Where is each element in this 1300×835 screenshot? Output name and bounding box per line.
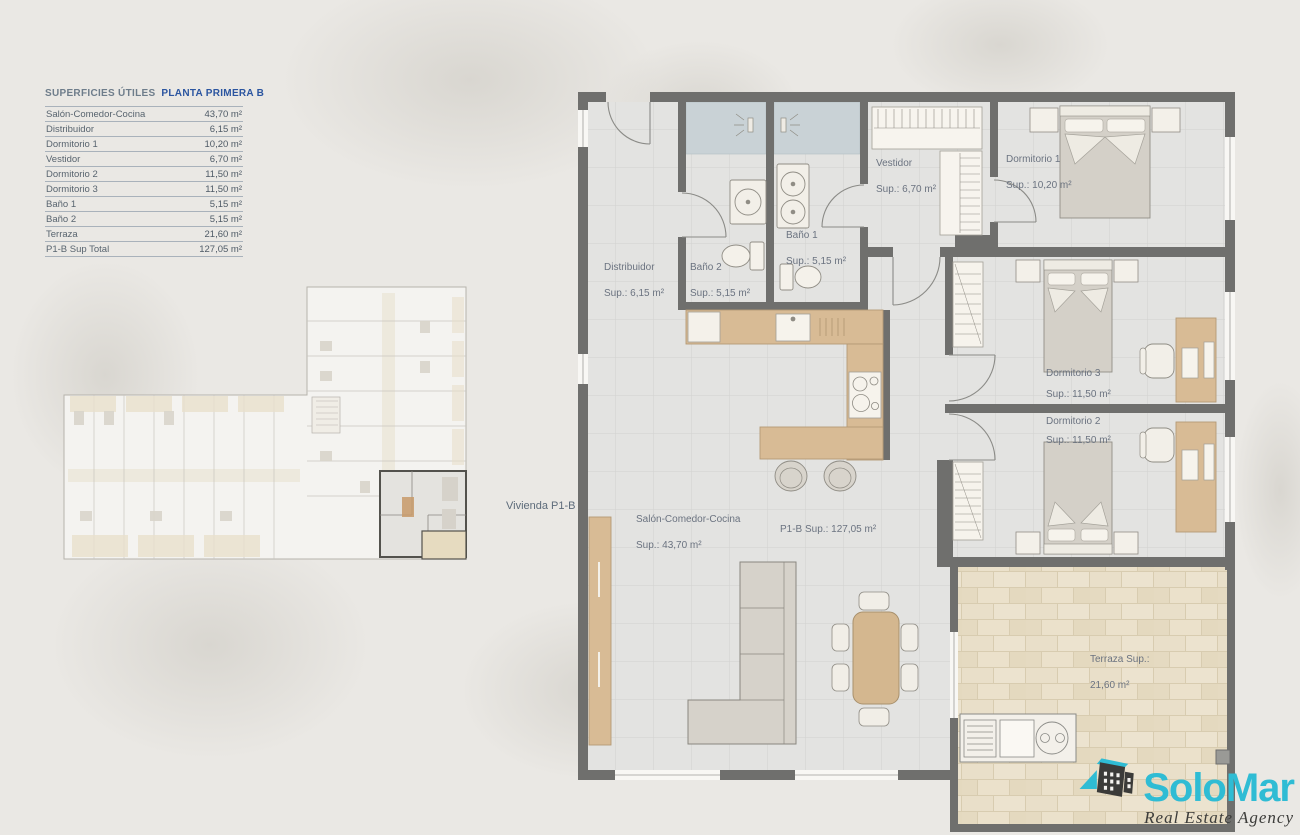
room-label-dormitorio3: Dormitorio 3 Sup.: 11,50 m² [1046,368,1111,415]
table-row-label: Terraza [46,229,78,240]
overview-unit-terrace [422,531,466,559]
room-label-bano2: Baño 2 Sup.: 5,15 m² [690,262,750,314]
overview-stairs [312,397,340,433]
background-stain [50,530,370,760]
table-row-label: Dormitorio 2 [46,169,98,180]
table-row-value: 5,15 m² [210,214,242,225]
table-row: Dormitorio 211,50 m² [45,167,243,182]
dining-chair [901,624,918,651]
room-label-dormitorio2: Dormitorio 2 Sup.: 11,50 m² [1046,416,1111,461]
surface-table-title-gray: SUPERFICIES ÚTILES [45,88,155,99]
table-row: Baño 15,15 m² [45,197,243,212]
agency-tagline: Real Estate Agency [1078,808,1294,828]
dining-chair [859,592,889,610]
overview-unit-label: Vivienda P1-B [506,500,576,512]
agency-logo: SoloMar Real Estate Agency [1078,750,1294,828]
surface-table: SUPERFICIES ÚTILESPLANTA PRIMERA B Salón… [45,88,243,257]
floorplan-main: Distribuidor Sup.: 6,15 m² Baño 2 Sup.: … [578,92,1245,835]
table-row-label: Distribuidor [46,124,94,135]
table-row-value: 11,50 m² [205,169,242,180]
table-row-value: 21,60 m² [205,229,243,240]
table-row: Salón-Comedor-Cocina43,70 m² [45,107,243,122]
shower-bano2 [686,102,766,154]
surface-table-rows: Salón-Comedor-Cocina43,70 m²Distribuidor… [45,106,243,257]
table-row-value: 11,50 m² [205,184,242,195]
bar-stool [775,461,807,491]
table-row-value: 127,05 m² [199,244,242,255]
table-row-label: Baño 2 [46,214,76,225]
table-row-value: 10,20 m² [205,139,243,150]
label-total-sup: P1-B Sup.: 127,05 m² [780,524,876,550]
table-row-label: Vestidor [46,154,80,165]
dining-chair [901,664,918,691]
table-row: Baño 25,15 m² [45,212,243,227]
table-row-value: 43,70 m² [205,109,243,120]
table-row-value: 5,15 m² [210,199,242,210]
room-label-vestidor: Vestidor Sup.: 6,70 m² [876,158,936,210]
table-row: Dormitorio 110,20 m² [45,137,243,152]
agency-brand-name: SoloMar [1143,770,1294,806]
floorplan-sheet: SUPERFICIES ÚTILESPLANTA PRIMERA B Salón… [0,0,1300,835]
sideboard [589,517,611,745]
dining-chair [859,708,889,726]
kitchen-fridge [688,312,720,342]
agency-logo-icon [1078,750,1139,806]
dining-table [853,612,899,704]
table-row-label: Dormitorio 3 [46,184,98,195]
table-row: Vestidor6,70 m² [45,152,243,167]
chair-dormitorio2 [1144,428,1174,462]
table-row: Distribuidor6,15 m² [45,122,243,137]
room-label-distribuidor: Distribuidor Sup.: 6,15 m² [604,262,664,314]
bar-stool [824,461,856,491]
kitchen-bar [760,427,883,459]
dining-chair [832,664,849,691]
table-row: P1-B Sup Total127,05 m² [45,242,243,257]
table-row-label: Dormitorio 1 [46,139,98,150]
surface-table-title-blue: PLANTA PRIMERA B [161,88,264,99]
table-row-value: 6,70 m² [210,154,242,165]
table-row-value: 6,15 m² [210,124,242,135]
table-row: Dormitorio 311,50 m² [45,182,243,197]
table-row-label: P1-B Sup Total [46,244,109,255]
room-label-salon: Salón-Comedor-Cocina Sup.: 43,70 m² [636,514,741,566]
room-label-terraza: Terraza Sup.: 21,60 m² [1090,654,1149,706]
chair-dormitorio3 [1144,344,1174,378]
room-label-bano1: Baño 1 Sup.: 5,15 m² [786,230,846,282]
shower-bano1 [774,102,860,154]
table-row: Terraza21,60 m² [45,227,243,242]
overview-building-plan [60,281,472,563]
surface-table-title: SUPERFICIES ÚTILESPLANTA PRIMERA B [45,88,243,99]
dining-chair [832,624,849,651]
table-row-label: Baño 1 [46,199,76,210]
table-row-label: Salón-Comedor-Cocina [46,109,145,120]
room-label-dormitorio1: Dormitorio 1 Sup.: 10,20 m² [1006,154,1072,206]
